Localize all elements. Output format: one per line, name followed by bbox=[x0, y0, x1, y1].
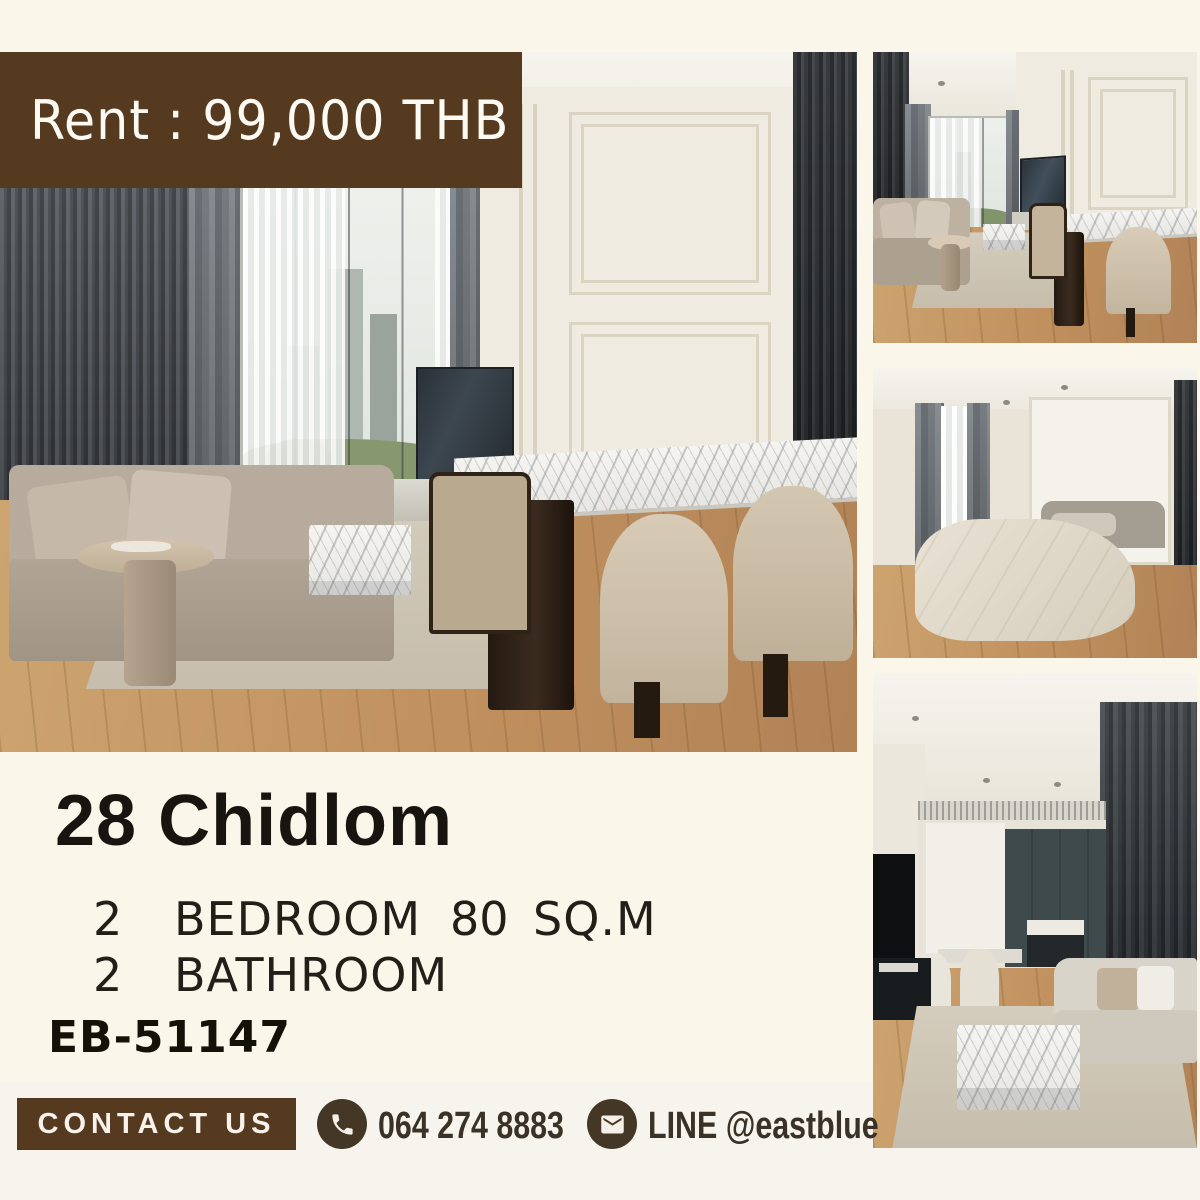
side-table-pedestal bbox=[941, 244, 960, 291]
marble-coffee-table bbox=[957, 1025, 1080, 1111]
area-value: 80 bbox=[450, 896, 509, 942]
dining-chair bbox=[733, 486, 853, 661]
sofa-pillow bbox=[1097, 968, 1140, 1010]
contact-us-button[interactable]: CONTACT US bbox=[17, 1098, 296, 1150]
dining-chair bbox=[1029, 203, 1067, 279]
phone-icon bbox=[329, 1111, 356, 1138]
downlight bbox=[983, 778, 990, 783]
marble-coffee-table bbox=[983, 224, 1025, 250]
photo-living-kitchen bbox=[873, 673, 1197, 1148]
listing-title: 28 Chidlom bbox=[55, 780, 453, 862]
wall-panel bbox=[1088, 77, 1188, 209]
chair-leg bbox=[634, 682, 660, 738]
line-account[interactable]: LINE @eastblue bbox=[648, 1105, 879, 1148]
downlight bbox=[912, 716, 919, 721]
counter-top bbox=[1027, 920, 1083, 935]
wall-molding bbox=[1070, 70, 1074, 214]
photo-living-room bbox=[873, 52, 1197, 343]
bedrooms-count: 2 bbox=[93, 896, 122, 942]
dining-chair bbox=[429, 472, 531, 634]
sheer-curtain bbox=[243, 188, 345, 510]
chair-leg bbox=[1126, 308, 1136, 337]
chair-leg bbox=[763, 654, 789, 717]
dining-chair bbox=[1106, 227, 1171, 314]
bed-duvet bbox=[915, 519, 1135, 641]
ac-grille bbox=[918, 801, 1106, 820]
bathrooms-count: 2 bbox=[93, 952, 122, 998]
photo-bedroom bbox=[873, 368, 1197, 658]
downlight bbox=[938, 81, 945, 86]
rent-banner: Rent : 99,000 THB bbox=[0, 52, 522, 188]
area-unit-label: SQ.M bbox=[533, 896, 657, 942]
downlight bbox=[1003, 400, 1010, 405]
side-table-pedestal bbox=[124, 560, 175, 686]
back-recess bbox=[918, 820, 1106, 967]
bedrooms-label: BEDROOM bbox=[174, 896, 421, 942]
envelope-icon bbox=[599, 1111, 626, 1138]
contact-us-label: CONTACT US bbox=[38, 1108, 276, 1141]
phone-number[interactable]: 064 274 8883 bbox=[378, 1105, 564, 1148]
bathrooms-label: BATHROOM bbox=[174, 952, 448, 998]
wall-panel bbox=[569, 112, 772, 294]
magazine bbox=[111, 541, 171, 552]
rent-price-text: Rent : 99,000 THB bbox=[30, 89, 509, 152]
marble-coffee-table bbox=[309, 525, 412, 595]
soundbar bbox=[879, 963, 918, 973]
listing-poster: Rent : 99,000 THB 28 Chidlom 2 BEDROOM 8… bbox=[0, 0, 1200, 1200]
line-badge bbox=[587, 1099, 637, 1149]
sofa-pillow bbox=[1137, 966, 1174, 1010]
reference-code: EB-51147 bbox=[48, 1012, 291, 1063]
dining-chair bbox=[600, 514, 729, 703]
tv bbox=[873, 854, 915, 959]
fluted-wall bbox=[1100, 702, 1197, 978]
wall-molding bbox=[533, 104, 537, 482]
wall-panel bbox=[926, 823, 1005, 958]
phone-badge bbox=[317, 1099, 367, 1149]
